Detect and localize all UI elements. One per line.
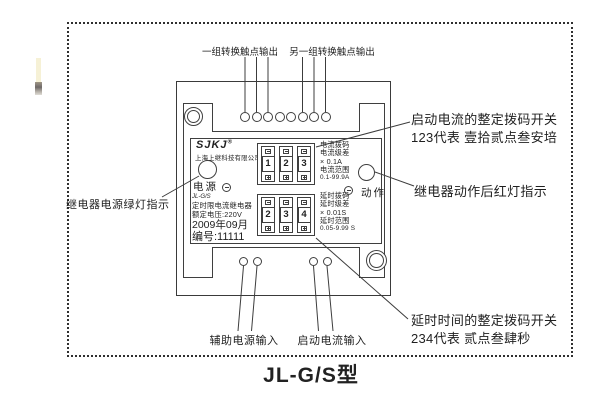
- serial-number-text: 编号:11111: [192, 232, 252, 243]
- thumbwheel-column: 2: [261, 197, 275, 233]
- annotation-line: 延时时间的整定拨码开关: [411, 312, 557, 330]
- thumbwheel-increment-icon: [301, 175, 307, 180]
- label-contact-group-1: 一组转换触点输出: [185, 44, 295, 58]
- terminal-top-1: [240, 112, 250, 122]
- mounting-screw-bottom-right: [366, 250, 387, 271]
- relay-type-text: 定时限电流继电器: [192, 202, 252, 209]
- minus-circle-icon: [344, 186, 353, 195]
- power-label: 电源: [193, 179, 218, 194]
- thumbwheel-decrement-icon: [283, 200, 289, 205]
- delay-thumbwheel-switch: 2 3 4: [257, 194, 315, 236]
- terminal-top-8: [321, 112, 331, 122]
- figure-canvas: 一组转换触点输出 另一组转换触点输出 SJKJ® 上海上继科技有限公司 电源 J…: [0, 0, 600, 400]
- current-thumbwheel-switch: 1 2 3: [257, 143, 315, 185]
- rated-voltage-text: 额定电压:220V: [192, 211, 252, 218]
- thumbwheel-column: 4: [297, 197, 311, 233]
- thumbwheel-column: 1: [261, 146, 275, 182]
- annotation-delay-switch: 延时时间的整定拨码开关 234代表 贰点叁肆秒: [411, 312, 557, 347]
- terminal-aux-power-1: [239, 257, 248, 266]
- model-text: JL-G/S: [192, 194, 252, 200]
- thumbwheel-decrement-icon: [301, 200, 307, 205]
- brand-logo-text: SJKJ: [196, 139, 228, 151]
- mounting-screw-top-left: [184, 107, 203, 126]
- spec-line: 延时范围: [320, 217, 384, 225]
- minus-circle-icon: [222, 183, 231, 192]
- annotation-power-led: 继电器电源绿灯指示: [66, 196, 170, 212]
- thumbwheel-column: 3: [279, 197, 293, 233]
- thumbwheel-decrement-icon: [301, 149, 307, 154]
- registered-mark: ®: [228, 139, 233, 145]
- terminal-top-2: [252, 112, 262, 122]
- thumbwheel-digit: 2: [280, 156, 293, 172]
- screw-inner-ring: [369, 253, 384, 268]
- annotation-line: 234代表 贰点叁肆秒: [411, 330, 557, 348]
- thumbwheel-decrement-icon: [265, 149, 271, 154]
- annotation-aux-power-input: 辅助电源输入: [194, 332, 294, 348]
- screw-inner-ring: [187, 110, 201, 124]
- terminal-aux-power-2: [253, 257, 262, 266]
- thumbwheel-increment-icon: [283, 175, 289, 180]
- thumbwheel-digit: 4: [298, 207, 311, 223]
- thumbwheel-column: 2: [279, 146, 293, 182]
- thumbwheel-increment-icon: [265, 226, 271, 231]
- thumbwheel-digit: 3: [280, 207, 293, 223]
- current-switch-spec: 电流拨码 电流级差 × 0.1A 电流范围 0.1-99.9A: [320, 141, 384, 182]
- annotation-start-current-input: 启动电流输入: [282, 332, 382, 348]
- terminal-top-3: [263, 112, 273, 122]
- thumbwheel-decrement-icon: [265, 200, 271, 205]
- thumbwheel-decrement-icon: [283, 149, 289, 154]
- label-contact-group-2: 另一组转换触点输出: [282, 44, 382, 58]
- scan-artifact: [36, 58, 41, 84]
- terminal-start-current-1: [309, 257, 318, 266]
- thumbwheel-column: 3: [297, 146, 311, 182]
- brand-logo: SJKJ®: [196, 139, 233, 151]
- terminal-top-7: [309, 112, 319, 122]
- scan-artifact-smudge: [35, 82, 42, 95]
- annotation-line: 启动电流的整定拨码开关: [411, 111, 557, 129]
- power-led-green: [198, 160, 217, 179]
- thumbwheel-digit: 3: [298, 156, 311, 172]
- annotation-line: 123代表 壹拾贰点叁安培: [411, 129, 557, 147]
- bottom-terminal-recess: [212, 247, 360, 278]
- terminal-top-6: [298, 112, 308, 122]
- annotation-action-led: 继电器动作后红灯指示: [414, 183, 547, 201]
- terminal-top-5: [286, 112, 296, 122]
- rating-info-block: JL-G/S 定时限电流继电器 额定电压:220V 2009年09月 编号:11…: [192, 194, 252, 243]
- figure-title: JL-G/S型: [58, 359, 564, 389]
- spec-line: 0.05-9.99 S: [320, 225, 384, 233]
- thumbwheel-digit: 1: [262, 156, 275, 172]
- thumbwheel-increment-icon: [301, 226, 307, 231]
- thumbwheel-increment-icon: [265, 175, 271, 180]
- action-led-red: [358, 164, 375, 181]
- annotation-current-switch: 启动电流的整定拨码开关 123代表 壹拾贰点叁安培: [411, 111, 557, 146]
- action-label: 动作: [361, 185, 386, 200]
- thumbwheel-increment-icon: [283, 226, 289, 231]
- manufacture-date-text: 2009年09月: [192, 220, 252, 231]
- terminal-start-current-2: [323, 257, 332, 266]
- thumbwheel-digit: 2: [262, 207, 275, 223]
- terminal-top-4: [275, 112, 285, 122]
